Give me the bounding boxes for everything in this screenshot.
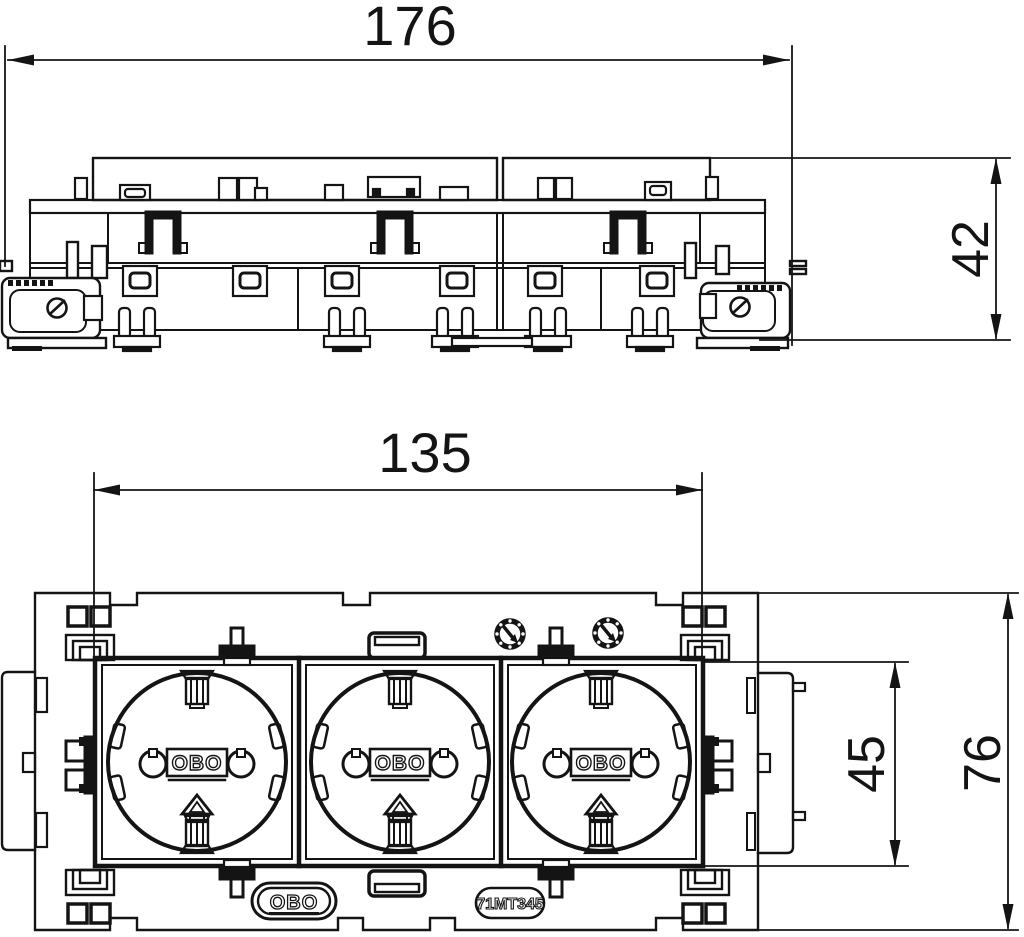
terminal-boxes xyxy=(123,266,674,296)
dimension-arrow-icon xyxy=(763,55,789,66)
dimension-arrow-icon xyxy=(890,840,901,866)
dimension-label: 45 xyxy=(838,735,896,793)
left-mount-tab xyxy=(2,672,47,850)
cover-left xyxy=(93,158,497,200)
part-number-text: 71MT345 xyxy=(476,896,544,913)
socket-outlet-1 xyxy=(108,671,286,853)
dimension-label: 76 xyxy=(954,734,1012,792)
dimension-arrow-icon xyxy=(676,485,702,496)
right-mount-tab xyxy=(747,673,805,853)
dimension-label: 135 xyxy=(378,421,471,484)
socket-outlet-3 xyxy=(512,671,690,853)
brand-badge-text: OBO xyxy=(270,892,319,914)
part-number-badge: 71MT345 xyxy=(476,888,544,918)
screw-clamp-left xyxy=(0,242,107,351)
dimension-insert-height: 45 xyxy=(703,662,908,866)
technical-drawing-page: OBO xyxy=(0,0,1024,937)
screw-clamp-right xyxy=(685,243,806,351)
top-tabs xyxy=(75,177,718,200)
dimension-arrow-icon xyxy=(94,485,120,496)
front-view: OBO 71MT345 xyxy=(2,593,805,930)
dimension-arrow-icon xyxy=(1003,593,1014,619)
dimension-label: 176 xyxy=(363,0,456,57)
brand-badge: OBO xyxy=(252,883,336,919)
cover-right xyxy=(503,158,710,200)
dimension-arrow-icon xyxy=(890,662,901,688)
dimension-arrow-icon xyxy=(991,158,1002,184)
dimension-arrow-icon xyxy=(1003,904,1014,930)
dimension-arrow-icon xyxy=(8,55,34,66)
drawing-canvas: OBO xyxy=(0,0,1024,937)
dimension-arrow-icon xyxy=(991,314,1002,340)
dimension-label: 42 xyxy=(942,220,1000,278)
side-elevation-view xyxy=(0,158,806,351)
socket-outlet-2 xyxy=(311,671,489,853)
